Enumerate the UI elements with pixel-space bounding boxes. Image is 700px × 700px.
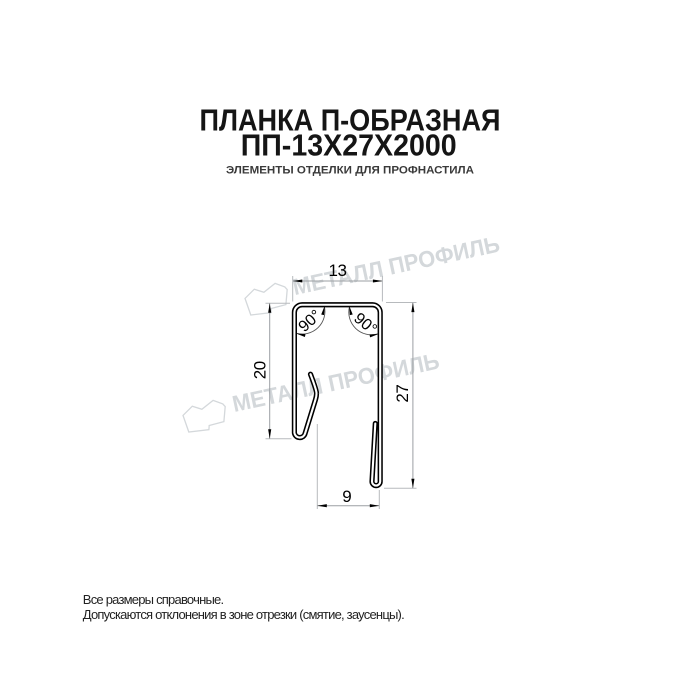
svg-text:27: 27 bbox=[393, 385, 412, 403]
svg-text:МЕТАЛЛ ПРОФИЛЬ: МЕТАЛЛ ПРОФИЛЬ bbox=[290, 231, 502, 300]
svg-text:ЭЛЕМЕНТЫ ОТДЕЛКИ ДЛЯ ПРОФНАСТИ: ЭЛЕМЕНТЫ ОТДЕЛКИ ДЛЯ ПРОФНАСТИЛА bbox=[226, 165, 474, 177]
svg-text:Все размеры справочные.: Все размеры справочные. bbox=[83, 592, 224, 607]
svg-text:20: 20 bbox=[250, 361, 269, 379]
svg-text:90°: 90° bbox=[296, 307, 325, 336]
svg-text:МЕТАЛЛ ПРОФИЛЬ: МЕТАЛЛ ПРОФИЛЬ bbox=[230, 348, 442, 417]
svg-text:9: 9 bbox=[342, 487, 351, 506]
svg-text:ПП-13Х27Х2000: ПП-13Х27Х2000 bbox=[241, 129, 457, 163]
svg-text:13: 13 bbox=[328, 261, 346, 280]
svg-text:Допускаются отклонения в зоне: Допускаются отклонения в зоне отрезки (с… bbox=[83, 607, 404, 622]
